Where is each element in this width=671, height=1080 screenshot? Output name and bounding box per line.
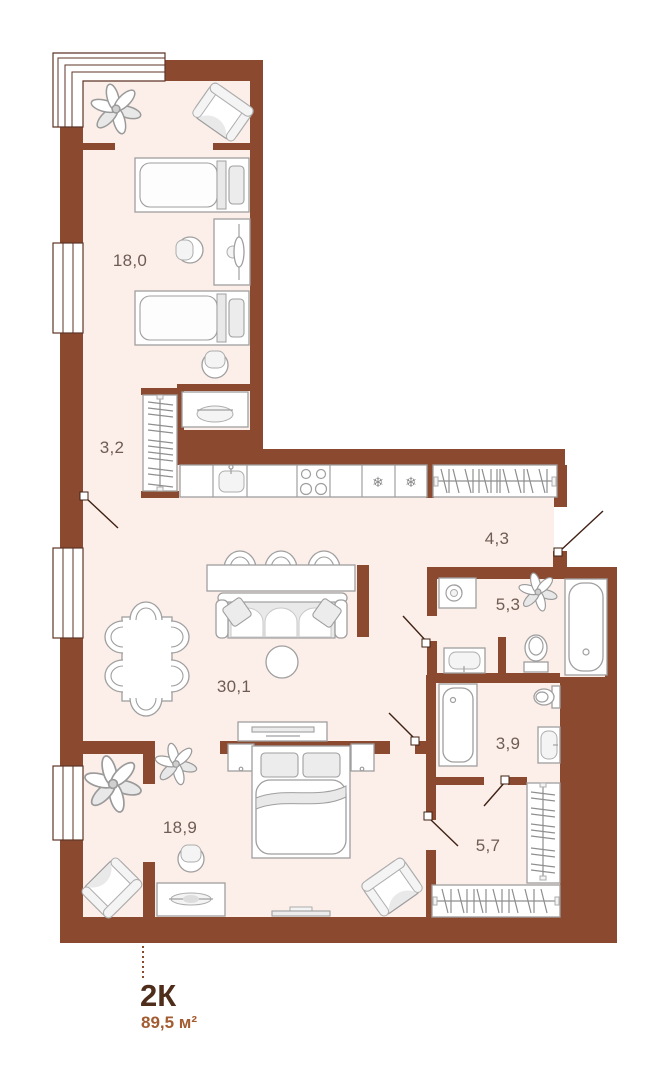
wall [560,677,605,917]
console-table-icon [207,565,355,591]
wall [141,491,179,498]
toilet-icon [524,635,548,672]
wall [250,81,263,430]
bathtub-icon [439,684,477,766]
room-area-label: 5,7 [476,836,501,855]
wall [427,673,560,683]
room-area-label: 3,9 [496,734,521,753]
coat-rack-icon [433,465,557,497]
window-icon [53,548,83,638]
wall [143,754,155,784]
wall [143,862,155,917]
window-icon [53,766,83,840]
entrance-door-icon [554,511,603,556]
room-area-label: 4,3 [485,529,510,548]
wardrobe-icon [527,783,560,883]
wall [357,565,369,637]
chair-icon [176,237,203,263]
room-area-label: 18,0 [113,251,147,270]
sink-icon [538,727,560,763]
wall [60,127,83,243]
sofa-icon [216,593,347,638]
wall [60,333,83,548]
wardrobe-icon [432,885,560,917]
tv-console-icon [238,722,327,741]
plan-type-label: 2К [140,978,176,1013]
wardrobe-icon [143,395,177,491]
wall [508,777,527,785]
fridge-icon: ❄ [372,475,384,491]
dining-table-icon [122,617,172,701]
single-bed-icon [135,158,249,212]
wall [498,637,506,675]
wall [213,143,250,150]
wall [427,579,437,616]
single-bed-icon [135,291,249,345]
floor-plan-svg: 18,0 3,2 [0,0,671,1080]
room-area-label: 3,2 [100,438,125,457]
chair-icon [178,845,204,872]
room-area-label: 30,1 [217,677,251,696]
total-area-label: 89,5 м² [141,1013,197,1032]
wall [60,741,155,754]
vanity-desk-icon [214,219,250,285]
floor-plan-page: 18,0 3,2 [0,0,671,1080]
wall [436,777,484,785]
kitchen-counter: ❄ ❄ [180,465,427,497]
wall [83,143,115,150]
wall [141,388,179,395]
bathtub-icon [565,579,607,675]
chair-icon [202,351,228,378]
coffee-table-icon [266,646,298,678]
desk-icon [157,883,225,916]
wall [427,567,617,579]
wall [177,449,565,465]
room-area-label: 18,9 [163,818,197,837]
freezer-icon: ❄ [405,475,417,491]
wall [60,917,617,943]
window-icon [53,243,83,333]
legend: 2К 89,5 м² [140,946,197,1032]
washing-machine-icon [439,578,476,608]
sink-icon [444,648,485,673]
wall [177,384,250,391]
dresser-icon [182,392,248,427]
room-area-label: 5,3 [496,595,521,614]
